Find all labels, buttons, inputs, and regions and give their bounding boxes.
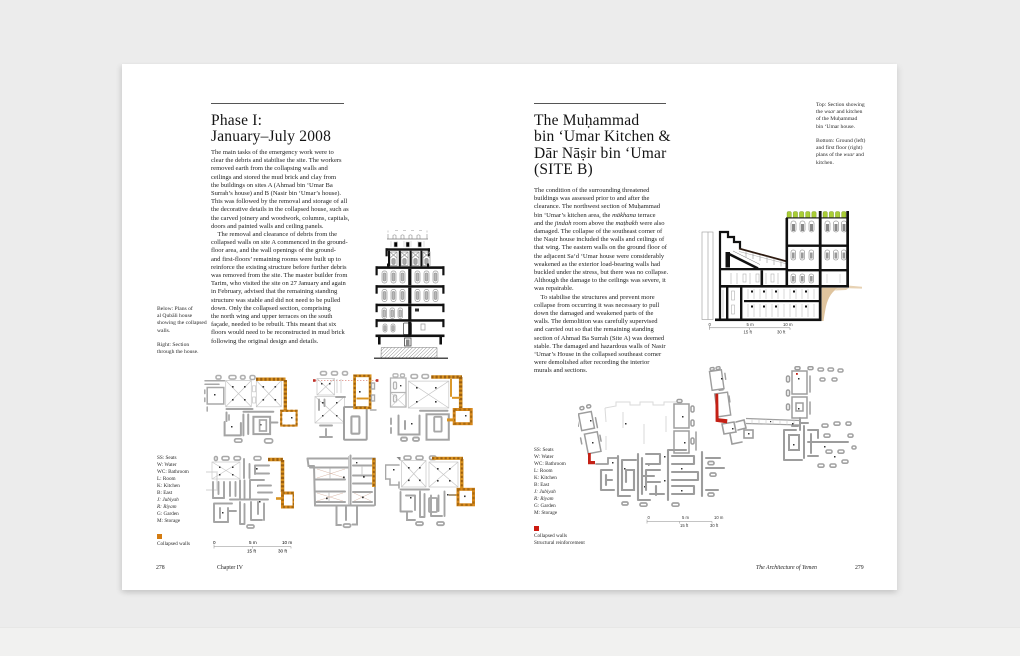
svg-text:15 ft: 15 ft: [680, 523, 689, 528]
svg-text:0: 0: [213, 540, 216, 545]
svg-text:5 m: 5 m: [747, 322, 755, 327]
svg-text:15 ft: 15 ft: [247, 549, 257, 554]
svg-text:30 ft: 30 ft: [278, 549, 288, 554]
svg-text:10 m: 10 m: [714, 515, 724, 520]
svg-text:5 m: 5 m: [682, 515, 689, 520]
svg-text:30 ft: 30 ft: [710, 523, 719, 528]
svg-text:30 ft: 30 ft: [777, 330, 786, 335]
svg-text:15 ft: 15 ft: [744, 330, 753, 335]
svg-text:10 m: 10 m: [783, 322, 793, 327]
svg-text:10 m: 10 m: [282, 540, 292, 545]
svg-text:0: 0: [648, 515, 651, 520]
svg-text:0: 0: [709, 322, 712, 327]
svg-text:5 m: 5 m: [249, 540, 257, 545]
